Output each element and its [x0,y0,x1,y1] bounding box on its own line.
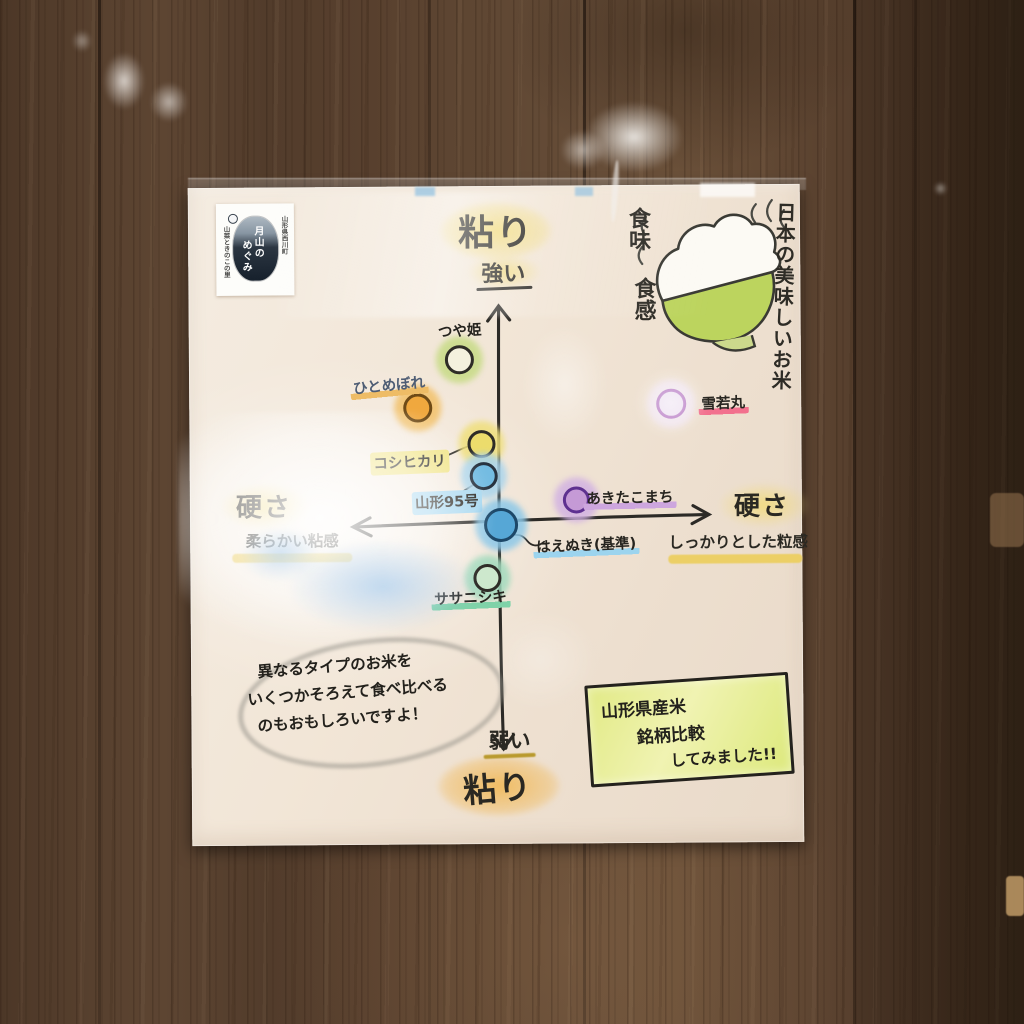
point-label-koshihikari: コシヒカリ [370,449,449,475]
point-label-akitakomachi: あきたこまち [583,485,677,510]
title-line-3: してみました!! [670,741,791,771]
point-label-yamagata-95: 山形95号 [412,489,483,515]
wall-scuff [150,82,188,122]
wall-scuff [560,130,606,170]
point-yamagata-95 [470,462,498,490]
photo-scene: 月山の めぐみ 山形県西川町 山菜ときのこの里 食味 食感 日本の美味しいお米 [0,0,1024,1024]
tape-piece [700,183,755,197]
wall-scuff [103,52,145,110]
plank-seam [98,0,101,1024]
point-hitomebore [403,393,432,422]
point-label-haenuki: はえぬき(基準) [533,532,640,559]
title-box: 山形県産米 銘柄比較 してみました!! [584,672,794,788]
point-label-tsuyahime: つや姫 [434,318,485,344]
rice-comparison-poster: 月山の めぐみ 山形県西川町 山菜ときのこの里 食味 食感 日本の美味しいお米 [188,184,805,846]
wall-notch [990,493,1024,547]
point-yukiwakamaru [656,389,686,419]
wall-scuff [72,30,92,52]
wall-notch [1006,876,1024,916]
point-label-sasanishiki: ササニシキ [431,585,510,611]
tape-piece [575,187,593,196]
wall-scuff [934,182,947,195]
tape-piece [415,187,435,196]
point-haenuki [484,508,518,542]
point-tsuyahime [444,345,473,374]
point-label-yukiwakamaru: 雪若丸 [698,391,748,416]
